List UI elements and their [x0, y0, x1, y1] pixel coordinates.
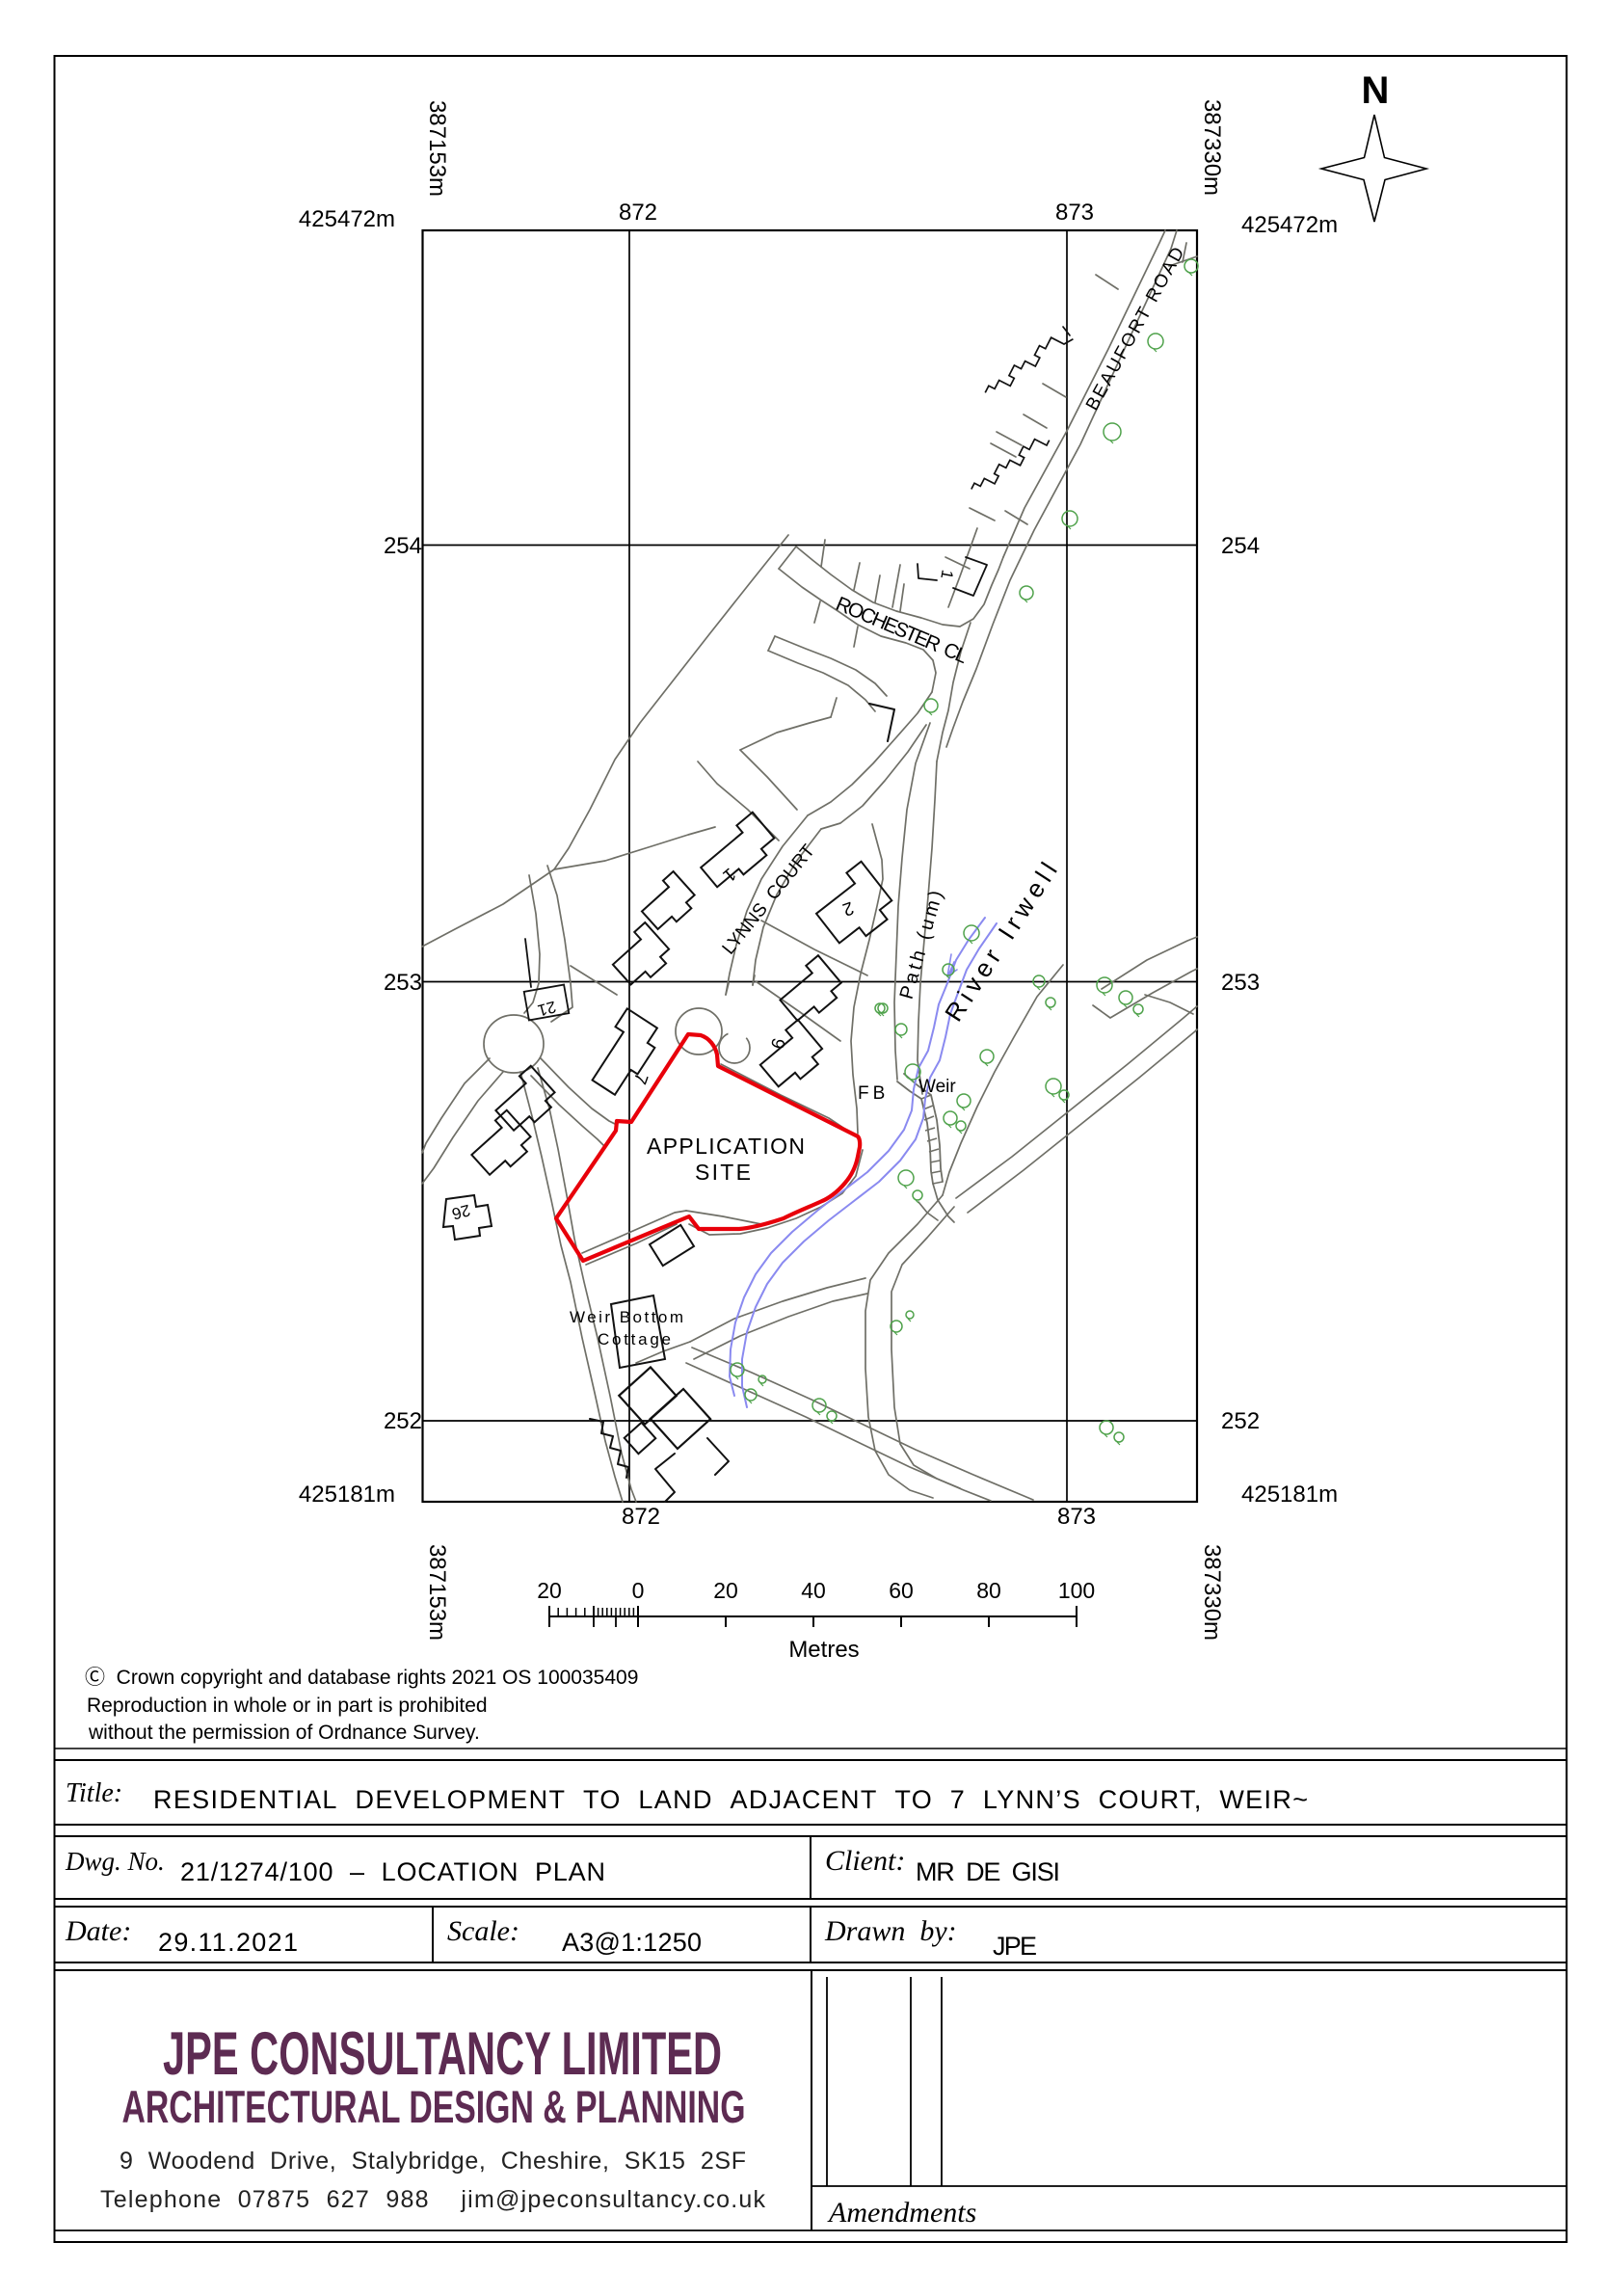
svg-text:425181m: 425181m: [1241, 1482, 1338, 1508]
svg-text:253: 253: [1221, 970, 1260, 996]
svg-text:Metres: Metres: [788, 1637, 859, 1663]
svg-text:20: 20: [537, 1578, 562, 1603]
svg-text:0: 0: [632, 1578, 645, 1603]
svg-text:MR DE GISI: MR DE GISI: [916, 1857, 1062, 1886]
svg-text:872: 872: [619, 200, 657, 226]
svg-text:Drawn by:: Drawn by:: [824, 1915, 957, 1947]
svg-text:80: 80: [976, 1578, 1001, 1603]
svg-text:RESIDENTIAL DEVELOPMENT TO: RESIDENTIAL DEVELOPMENT TO LAND ADJACENT…: [153, 1785, 1310, 1814]
svg-text:Reproduction in whole or in pa: Reproduction in whole or in part is proh…: [87, 1695, 488, 1717]
svg-text:872: 872: [622, 1504, 660, 1530]
svg-text:Client:: Client:: [825, 1845, 905, 1877]
svg-text:387153m: 387153m: [424, 100, 450, 197]
svg-text:252: 252: [1221, 1408, 1260, 1434]
svg-text:Ⓒ Crown copyright and databas: Ⓒ Crown copyright and database rights 20…: [85, 1667, 638, 1689]
svg-text:9 Woodend Drive, Stalybridg: 9 Woodend Drive, Stalybridge, Cheshire, …: [120, 2148, 746, 2175]
svg-text:FB: FB: [858, 1083, 889, 1104]
svg-text:253: 253: [384, 970, 422, 996]
svg-text:Telephone 07875 627 988: Telephone 07875 627 988 jim@jpeconsultan…: [100, 2186, 766, 2213]
svg-text:254: 254: [1221, 533, 1260, 559]
svg-text:29.11.2021: 29.11.2021: [158, 1928, 298, 1957]
svg-text:SITE: SITE: [695, 1160, 751, 1185]
svg-text:387330m: 387330m: [1199, 99, 1225, 196]
svg-text:ARCHITECTURAL DESIGN & PLANNIN: ARCHITECTURAL DESIGN & PLANNING: [122, 2081, 746, 2132]
svg-text:100: 100: [1058, 1578, 1095, 1603]
svg-text:JPE CONSULTANCY LIMITED: JPE CONSULTANCY LIMITED: [163, 2020, 722, 2088]
svg-text:Date:: Date:: [65, 1915, 131, 1947]
svg-text:Amendments: Amendments: [827, 2197, 976, 2229]
svg-text:Scale:: Scale:: [447, 1915, 519, 1947]
svg-text:40: 40: [801, 1578, 826, 1603]
svg-text:425472m: 425472m: [1241, 212, 1338, 238]
svg-text:A3@1:1250: A3@1:1250: [562, 1928, 702, 1957]
svg-text:Dwg. No.: Dwg. No.: [65, 1847, 165, 1876]
svg-text:425181m: 425181m: [299, 1482, 395, 1508]
svg-text:252: 252: [384, 1408, 422, 1434]
svg-text:without the permission of Ordn: without the permission of Ordnance Surve…: [88, 1722, 480, 1744]
svg-text:60: 60: [889, 1578, 914, 1603]
svg-text:873: 873: [1057, 1504, 1096, 1530]
svg-text:254: 254: [384, 533, 422, 559]
svg-text:20: 20: [713, 1578, 738, 1603]
svg-text:Weir: Weir: [918, 1077, 956, 1097]
svg-text:21/1274/100 – LOCATION PLAN: 21/1274/100 – LOCATION PLAN: [180, 1857, 607, 1886]
svg-text:APPLICATION: APPLICATION: [647, 1134, 805, 1159]
svg-text:N: N: [1362, 69, 1390, 112]
svg-text:Weir Bottom: Weir Bottom: [570, 1308, 683, 1326]
svg-text:387153m: 387153m: [424, 1544, 450, 1641]
svg-text:JPE: JPE: [993, 1932, 1037, 1961]
svg-text:387330m: 387330m: [1199, 1544, 1225, 1641]
svg-text:425472m: 425472m: [299, 206, 395, 232]
svg-text:873: 873: [1055, 200, 1094, 226]
svg-text:Title:: Title:: [66, 1778, 122, 1808]
